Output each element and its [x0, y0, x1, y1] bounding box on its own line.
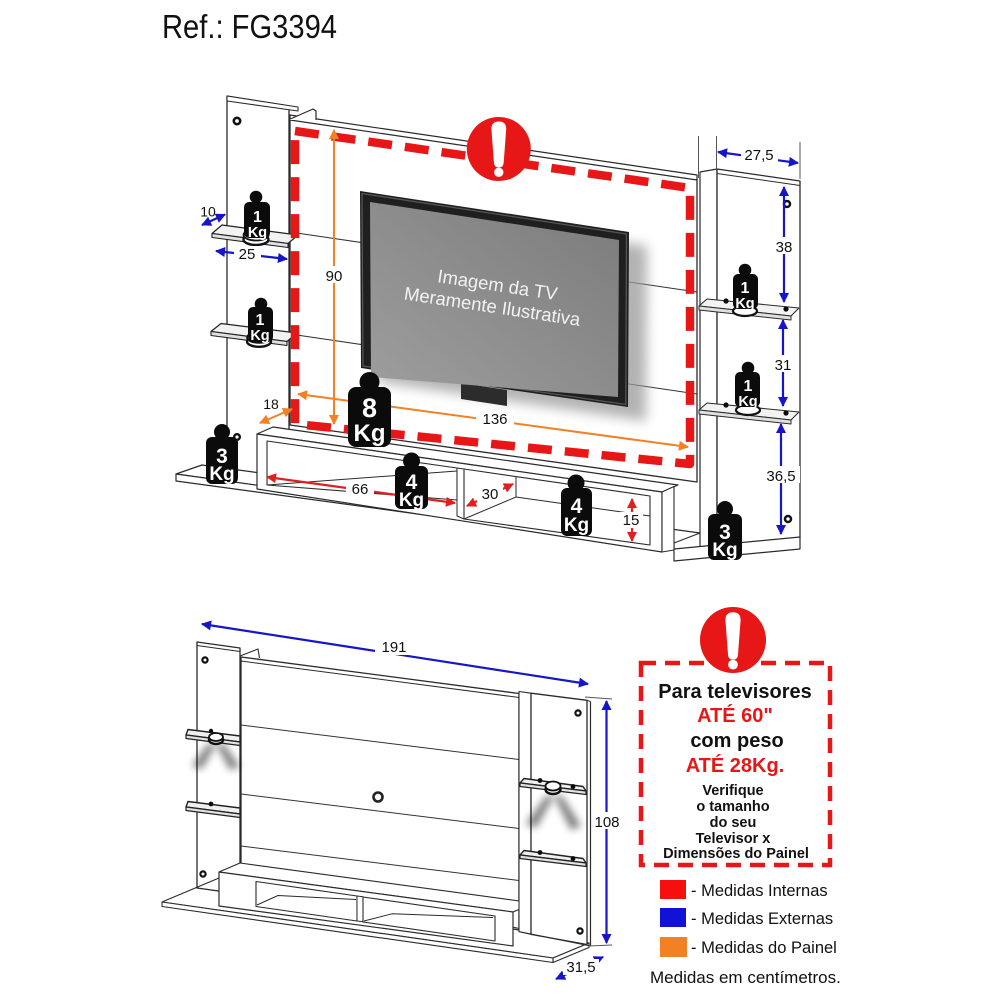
svg-text:Verifique: Verifique	[702, 783, 763, 799]
svg-text:30: 30	[482, 486, 499, 503]
svg-text:1: 1	[253, 209, 262, 226]
svg-text:18: 18	[263, 396, 279, 412]
svg-text:Kg: Kg	[735, 296, 754, 312]
svg-text:136: 136	[482, 411, 507, 428]
svg-text:Kg: Kg	[399, 490, 424, 511]
svg-text:do seu: do seu	[710, 815, 757, 831]
svg-text:Televisor x: Televisor x	[696, 831, 771, 847]
svg-text:Kg: Kg	[564, 515, 589, 536]
svg-text:108: 108	[594, 814, 619, 831]
svg-text:o tamanho: o tamanho	[696, 799, 769, 815]
svg-text:Kg: Kg	[354, 420, 386, 447]
svg-text:31: 31	[775, 357, 792, 374]
svg-text:66: 66	[352, 481, 369, 498]
svg-text:Para televisores: Para televisores	[658, 681, 811, 703]
svg-text:8: 8	[362, 393, 377, 423]
svg-text:com peso: com peso	[690, 730, 783, 752]
svg-text:1: 1	[256, 312, 265, 329]
svg-text:- Medidas Externas: - Medidas Externas	[691, 910, 833, 928]
svg-text:ATÉ 28Kg.: ATÉ 28Kg.	[686, 754, 785, 777]
svg-text:Medidas em centímetros.: Medidas em centímetros.	[650, 968, 841, 987]
svg-text:38: 38	[776, 239, 793, 256]
svg-text:25: 25	[239, 246, 256, 263]
svg-text:Kg: Kg	[250, 328, 269, 344]
svg-text:15: 15	[623, 512, 640, 529]
svg-text:ATÉ 60": ATÉ 60"	[697, 704, 773, 727]
svg-text:1: 1	[744, 378, 753, 395]
svg-text:Kg: Kg	[712, 540, 737, 561]
svg-text:Dimensões do Painel: Dimensões do Painel	[663, 846, 809, 862]
svg-text:Kg: Kg	[738, 394, 757, 410]
svg-text:Kg: Kg	[209, 464, 234, 485]
svg-text:27,5: 27,5	[744, 147, 773, 164]
svg-text:Kg: Kg	[248, 225, 267, 241]
svg-text:- Medidas Internas: - Medidas Internas	[691, 882, 828, 900]
svg-text:10: 10	[200, 204, 216, 220]
svg-text:Ref.: FG3394: Ref.: FG3394	[162, 8, 337, 45]
svg-text:90: 90	[326, 268, 343, 285]
svg-text:36,5: 36,5	[766, 468, 795, 485]
svg-text:- Medidas do Painel: - Medidas do Painel	[691, 939, 837, 957]
svg-text:1: 1	[741, 280, 750, 297]
svg-text:31,5: 31,5	[566, 959, 595, 976]
svg-text:191: 191	[381, 639, 406, 656]
